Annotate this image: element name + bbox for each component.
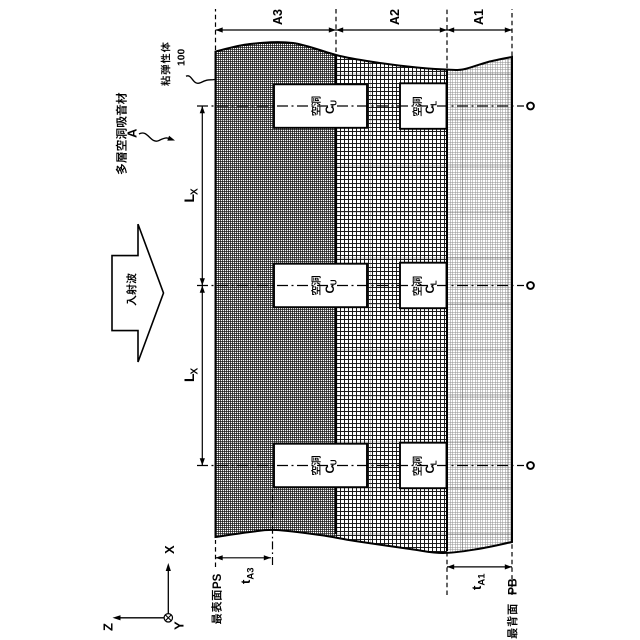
svg-text:A2: A2 <box>388 9 402 25</box>
svg-text:tA3: tA3 <box>238 568 257 585</box>
svg-text:A1: A1 <box>472 9 486 25</box>
svg-text:PS: PS <box>212 573 224 589</box>
svg-text:Y: Y <box>172 621 187 630</box>
svg-text:LX: LX <box>181 367 201 382</box>
svg-text:A: A <box>125 128 140 138</box>
svg-text:LX: LX <box>181 188 201 203</box>
svg-text:tA1: tA1 <box>469 573 488 590</box>
svg-text:A3: A3 <box>271 9 285 25</box>
svg-text:Z: Z <box>101 623 116 631</box>
svg-text:PB: PB <box>506 578 520 595</box>
svg-text:X: X <box>162 545 177 554</box>
svg-text:100: 100 <box>176 49 187 66</box>
